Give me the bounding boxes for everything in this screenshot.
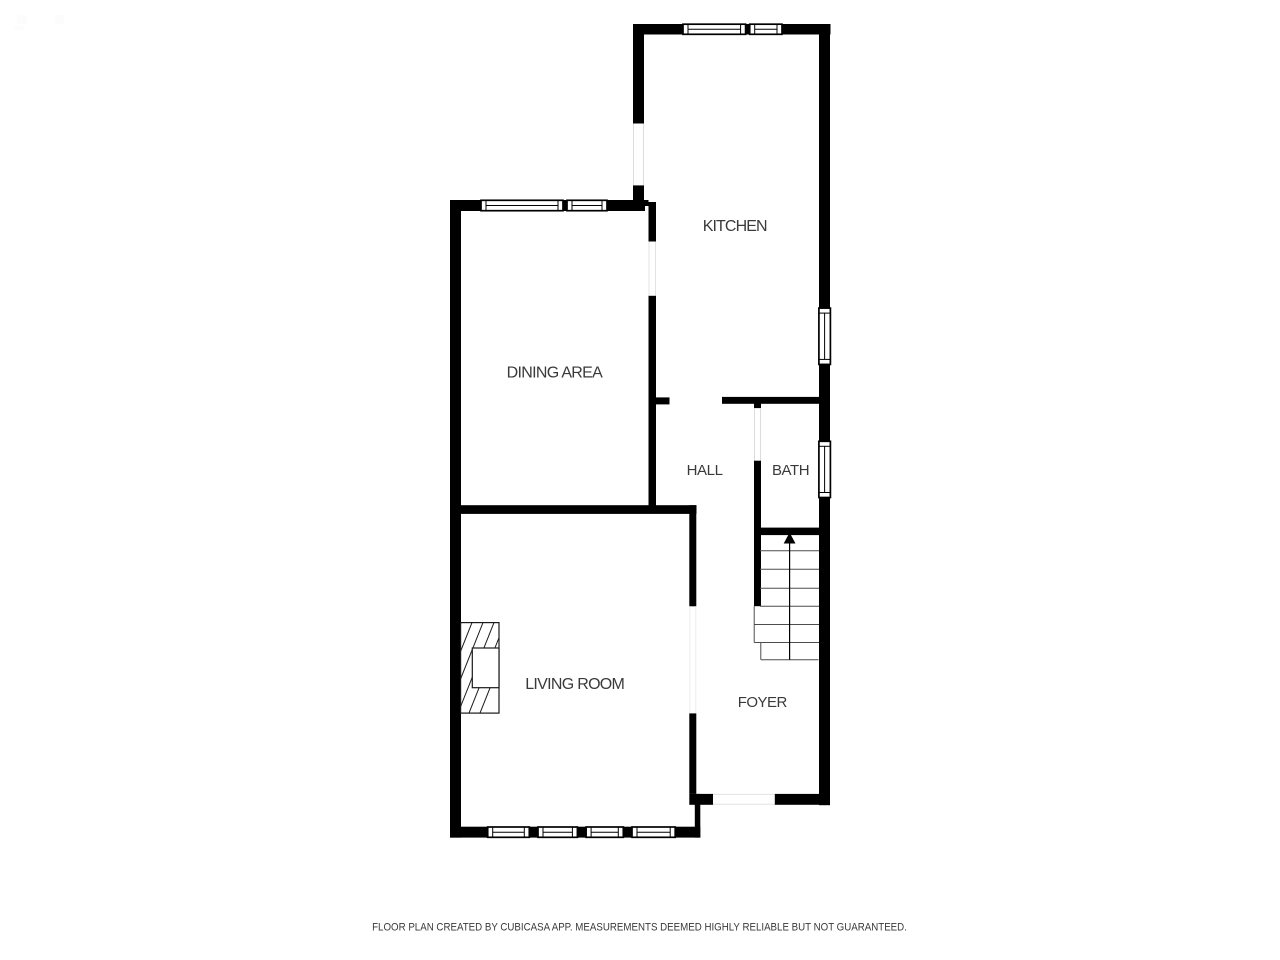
svg-text:FOYER: FOYER <box>738 694 788 711</box>
svg-text:BATH: BATH <box>772 462 809 479</box>
svg-text:FLOOR PLAN CREATED BY CUBICASA: FLOOR PLAN CREATED BY CUBICASA APP. MEAS… <box>372 922 907 934</box>
svg-text:KITCHEN: KITCHEN <box>703 218 767 235</box>
svg-text:HALL: HALL <box>687 462 723 479</box>
svg-text:LIVING ROOM: LIVING ROOM <box>525 676 624 693</box>
svg-text:DINING AREA: DINING AREA <box>507 364 603 381</box>
